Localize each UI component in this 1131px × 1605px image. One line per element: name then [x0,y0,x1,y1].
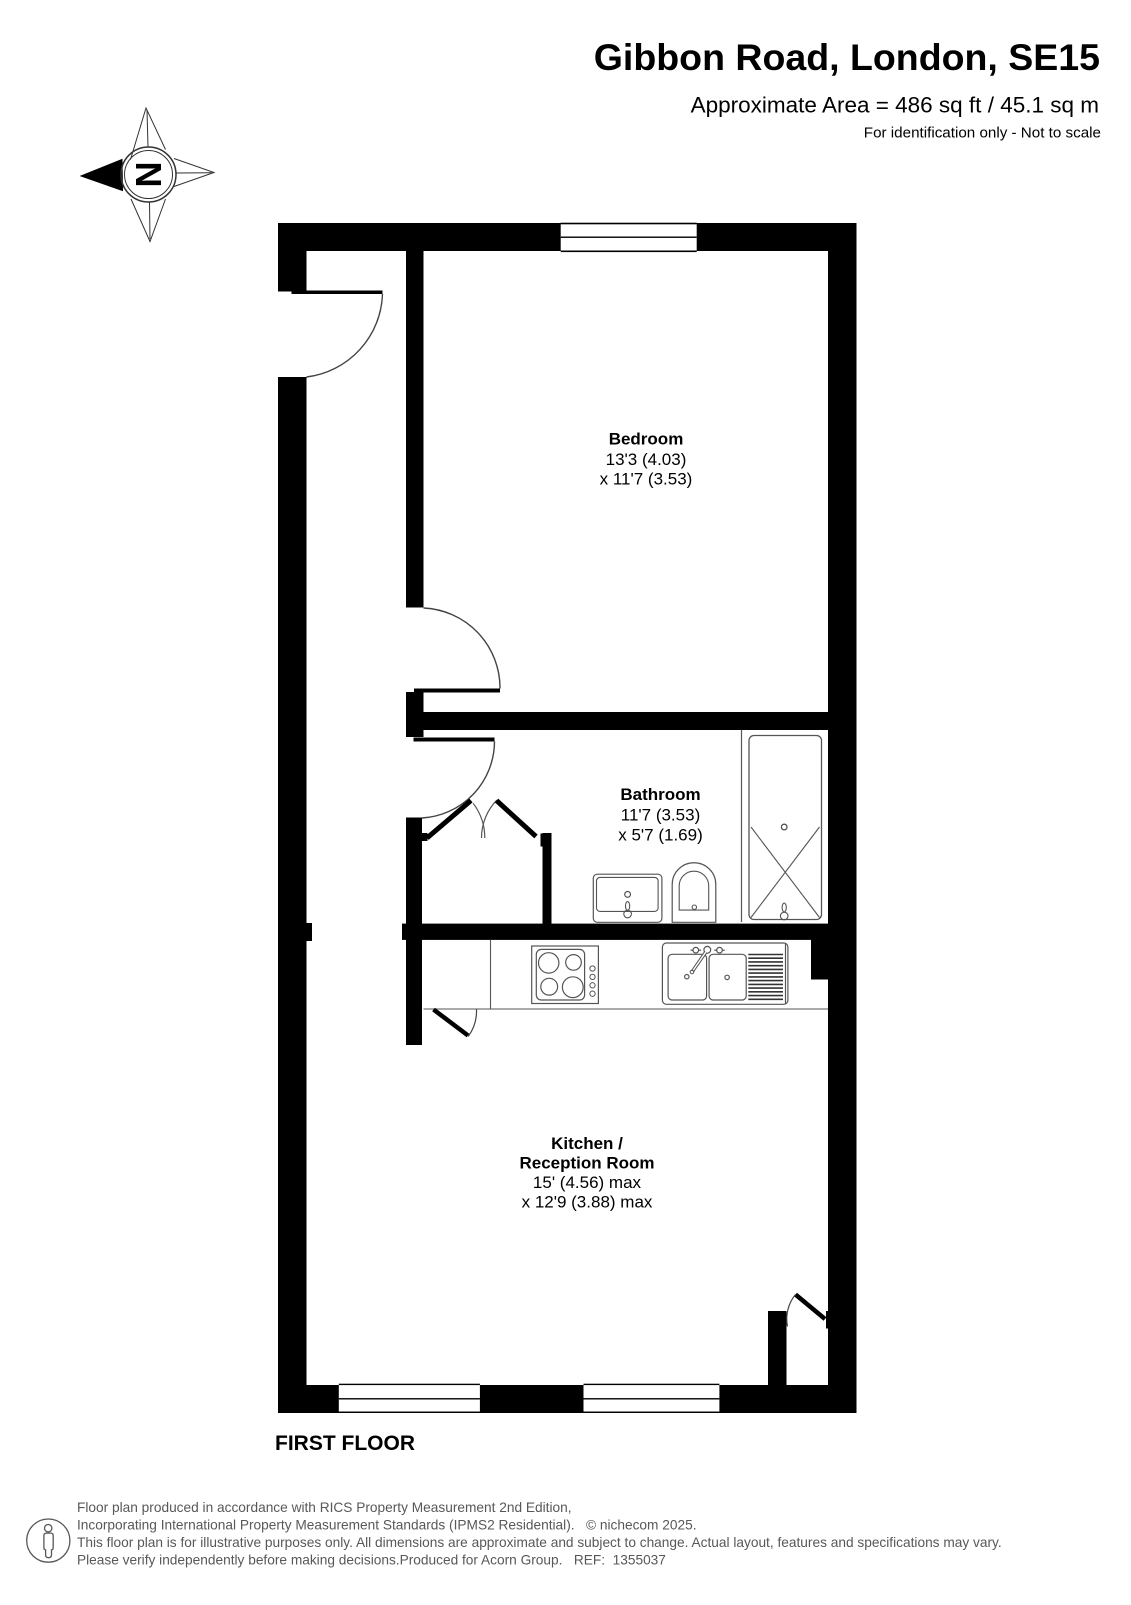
svg-text:13'3 (4.03): 13'3 (4.03) [606,450,687,469]
svg-text:15' (4.56) max: 15' (4.56) max [533,1173,642,1192]
svg-text:Floor plan produced in accorda: Floor plan produced in accordance with R… [77,1500,572,1515]
svg-text:Incorporating International Pr: Incorporating International Property Mea… [77,1518,697,1533]
svg-text:11'7 (3.53): 11'7 (3.53) [621,805,700,824]
svg-text:Approximate Area = 486 sq ft /: Approximate Area = 486 sq ft / 45.1 sq m [691,93,1099,118]
svg-text:Kitchen /: Kitchen / [551,1134,623,1153]
svg-text:Bathroom: Bathroom [620,785,700,804]
svg-text:N: N [128,162,169,188]
svg-text:Bedroom: Bedroom [609,430,684,449]
svg-text:FIRST FLOOR: FIRST FLOOR [275,1432,415,1455]
svg-text:x 11'7 (3.53): x 11'7 (3.53) [600,470,693,489]
svg-text:For identification only - Not: For identification only - Not to scale [864,125,1101,142]
svg-text:Reception Room: Reception Room [519,1154,654,1173]
svg-text:x 12'9 (3.88) max: x 12'9 (3.88) max [522,1193,653,1212]
svg-text:Please verify independently be: Please verify independently before makin… [77,1553,666,1568]
svg-text:This floor plan is for illustr: This floor plan is for illustrative purp… [77,1535,1002,1550]
svg-text:x 5'7 (1.69): x 5'7 (1.69) [618,826,703,845]
svg-text:Gibbon Road, London, SE15: Gibbon Road, London, SE15 [594,36,1100,78]
